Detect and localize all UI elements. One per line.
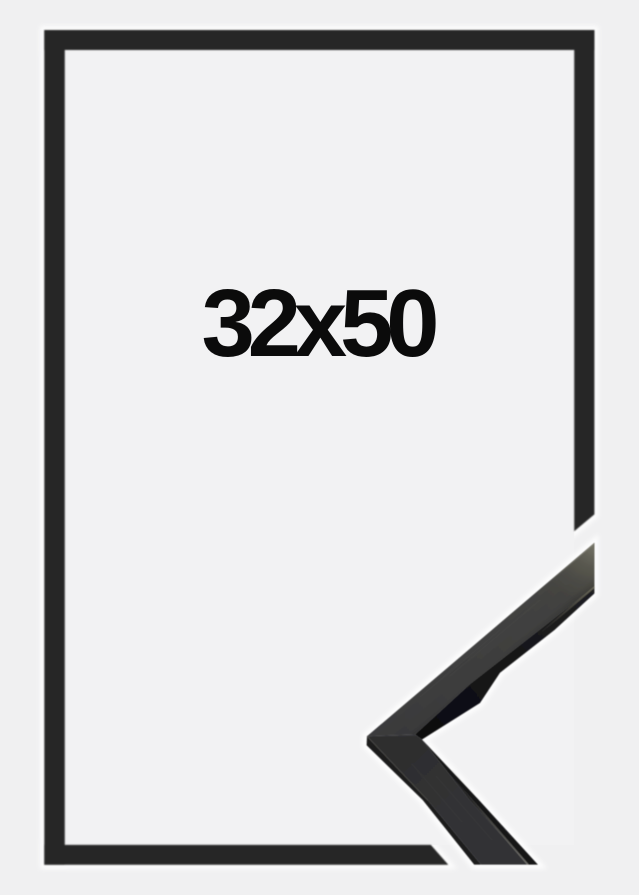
svg-text:32x50: 32x50 — [202, 270, 440, 377]
